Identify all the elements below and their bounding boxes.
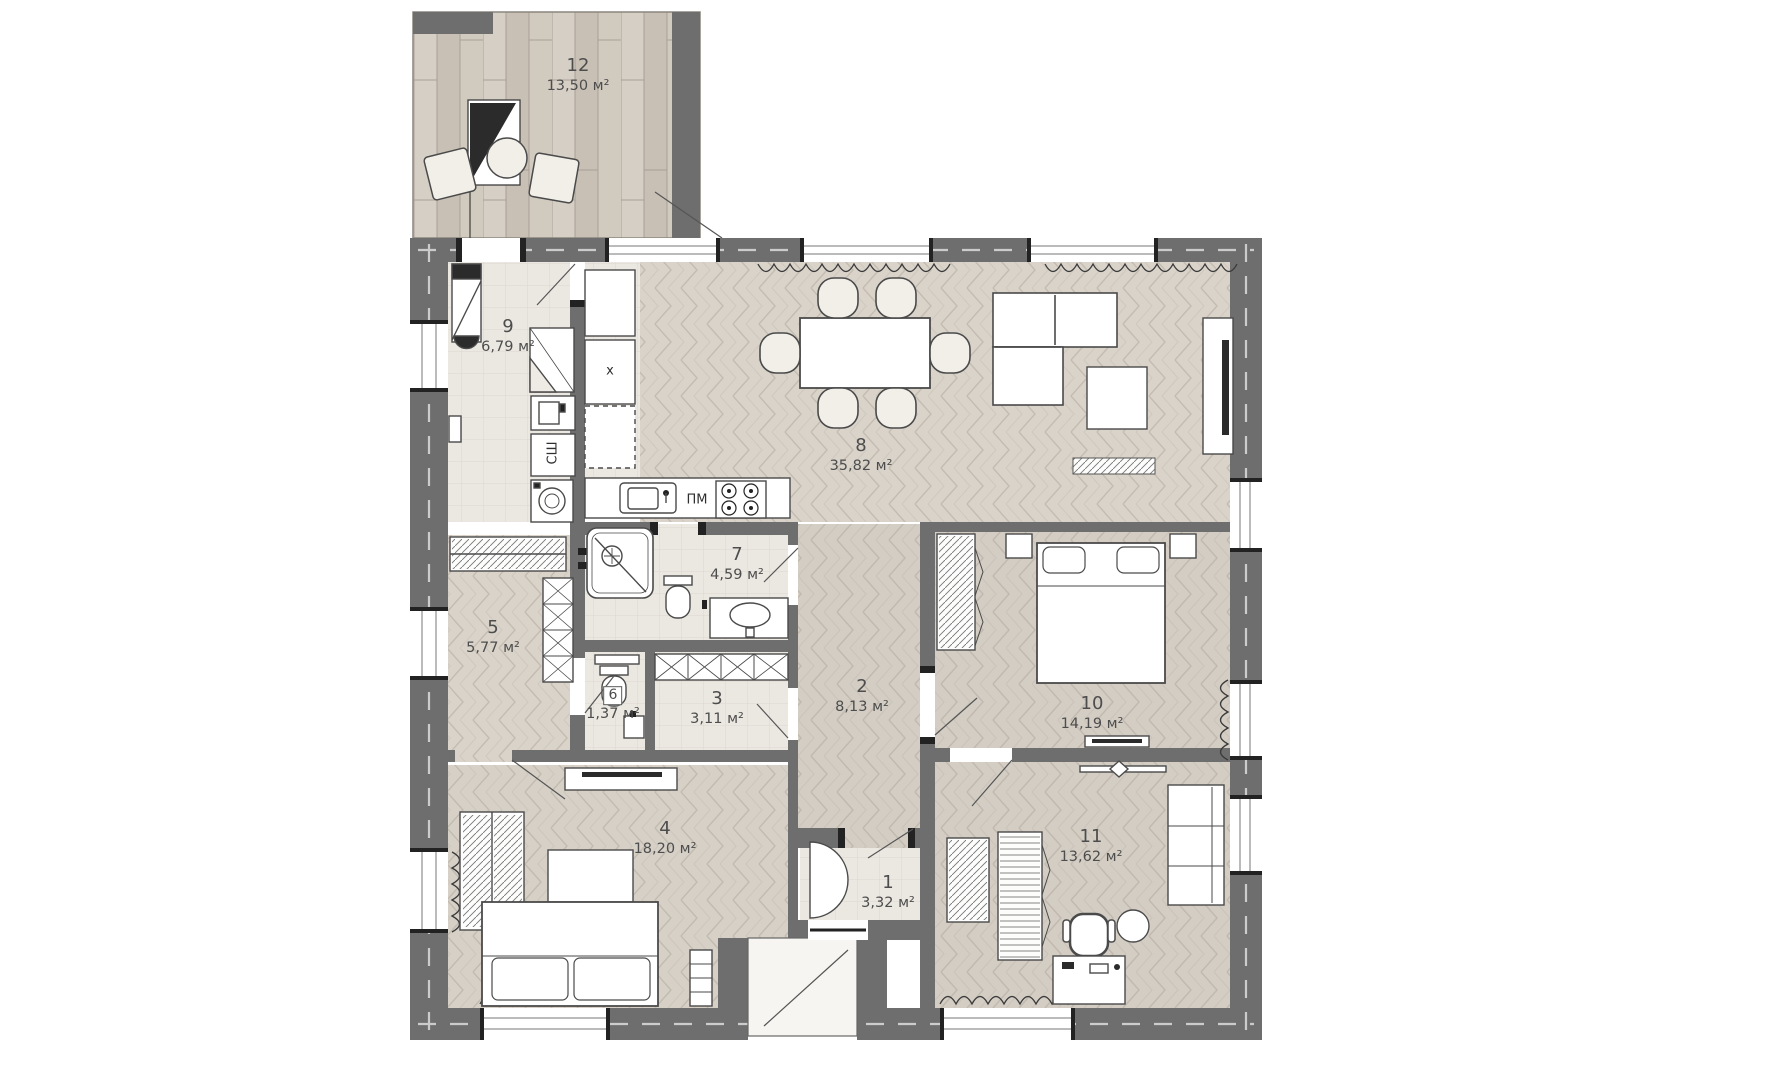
side-table [1117, 910, 1149, 942]
bedroom4-tv-console [565, 768, 677, 790]
tv-unit [1203, 318, 1233, 454]
terrace [413, 12, 722, 238]
wc-toilet [600, 666, 628, 706]
desk [1053, 956, 1125, 1004]
nightstand [1006, 534, 1032, 558]
ottoman [548, 850, 633, 902]
office-wardrobe-a [947, 838, 989, 922]
window [1230, 795, 1262, 875]
bedroom4-sofa [482, 902, 658, 1006]
kitchen-base-cabinet [585, 406, 635, 468]
bathroom-sink [702, 598, 788, 638]
hall-cabinet-column [543, 578, 573, 682]
terrace-chair [423, 147, 476, 200]
window [1230, 680, 1262, 760]
washing-machine [531, 480, 573, 522]
corner-cabinet [530, 328, 574, 392]
coffee-table [1087, 367, 1147, 429]
window [410, 607, 448, 680]
wall-unit [449, 416, 461, 442]
office-wardrobe-b [998, 832, 1050, 960]
fridge [585, 340, 635, 404]
window [940, 1008, 1075, 1040]
bedroom-tv-bench [1085, 736, 1149, 747]
floor-plan-page: 12 13,50 м² 9 6,79 м² 8 35,82 м² 7 4,59 … [0, 0, 1765, 1080]
kitchen-sink [620, 483, 676, 513]
porch [748, 920, 868, 1036]
floor-plan-drawing [0, 0, 1765, 1080]
ladder-radiator [690, 950, 712, 1006]
stove [716, 481, 766, 518]
double-bed [1037, 543, 1165, 683]
dining-table [800, 318, 930, 388]
window [410, 320, 448, 392]
basin-cabinet [531, 396, 575, 430]
window [410, 848, 448, 933]
closet-shelving [655, 654, 788, 680]
toilet [664, 576, 692, 618]
window [800, 238, 933, 262]
desk-chair [1063, 914, 1115, 956]
window [1230, 478, 1262, 552]
water-heater [452, 264, 481, 349]
window [605, 238, 720, 262]
nightstand [1170, 534, 1196, 558]
window [480, 1008, 610, 1040]
window [1027, 238, 1158, 262]
floor-grille [1073, 458, 1155, 474]
hall-wardrobe [450, 537, 566, 571]
terrace-round-table [487, 138, 527, 178]
kitchen-tall-cabinet [585, 270, 635, 336]
shower [587, 528, 653, 598]
office-sofa [1168, 785, 1224, 905]
terrace-chair [529, 153, 580, 204]
wc-shelf [595, 655, 639, 664]
dryer-cabinet [531, 434, 575, 476]
